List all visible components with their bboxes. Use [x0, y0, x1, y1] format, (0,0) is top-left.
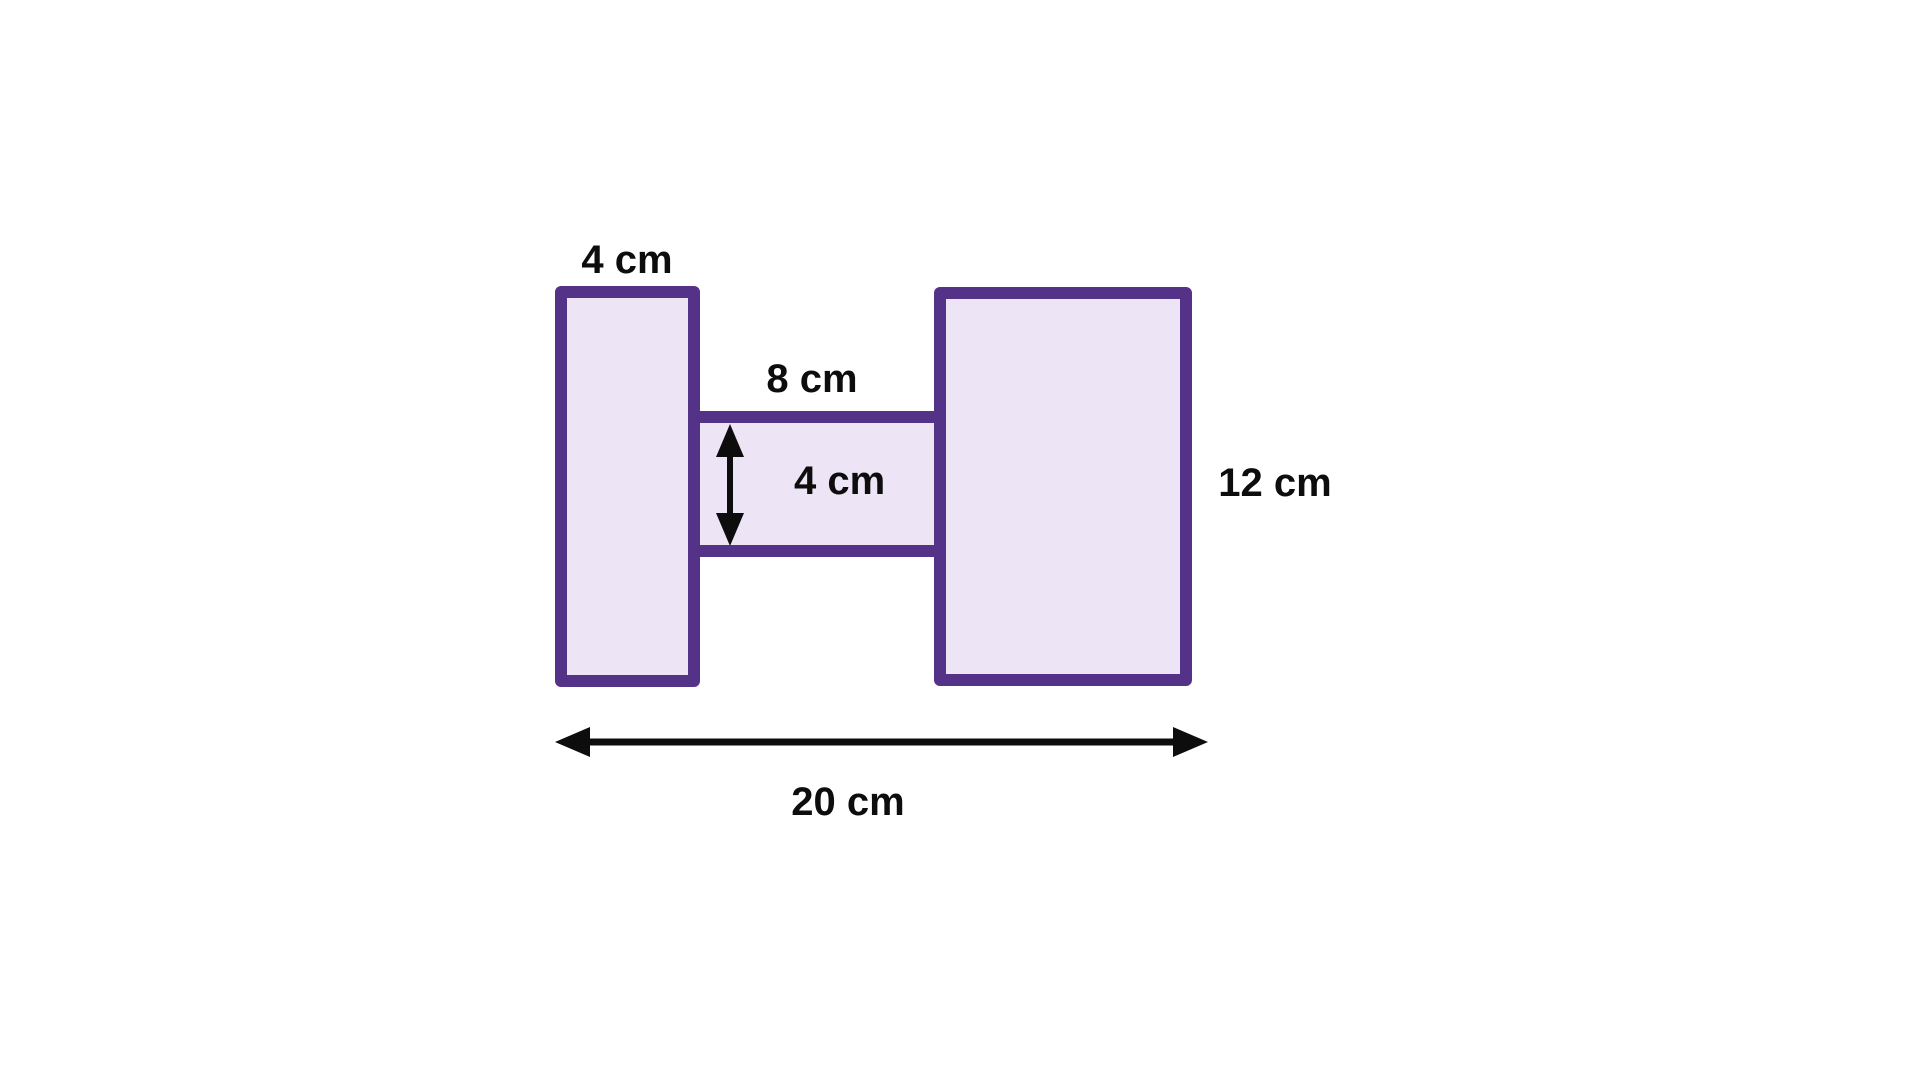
right-rectangle: [940, 293, 1186, 680]
compound-shape-diagram: 4 cm 8 cm 4 cm 12 cm 20 cm: [0, 0, 1920, 1080]
total-length-arrow: [555, 727, 1208, 757]
label-total-length: 20 cm: [791, 780, 904, 824]
total-length-arrow-right-head-icon: [1173, 727, 1208, 757]
label-right-height: 12 cm: [1218, 461, 1331, 505]
total-length-arrow-left-head-icon: [555, 727, 590, 757]
left-rectangle: [561, 292, 694, 681]
label-left-width: 4 cm: [581, 238, 672, 282]
diagram-canvas: 4 cm 8 cm 4 cm 12 cm 20 cm: [0, 0, 1920, 1080]
label-connector-height: 4 cm: [794, 459, 885, 503]
label-connector-length: 8 cm: [766, 357, 857, 401]
